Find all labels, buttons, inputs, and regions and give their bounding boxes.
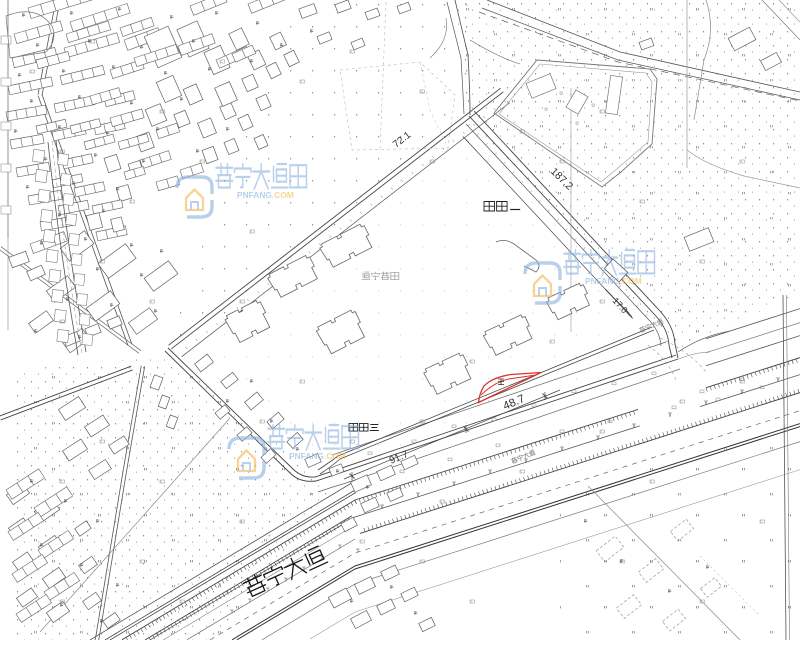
svg-text:PNFANG.COM: PNFANG.COM [289,451,346,461]
svg-text:PNFANG.COM: PNFANG.COM [237,190,294,200]
svg-text:PNFANG.COM: PNFANG.COM [585,276,642,286]
